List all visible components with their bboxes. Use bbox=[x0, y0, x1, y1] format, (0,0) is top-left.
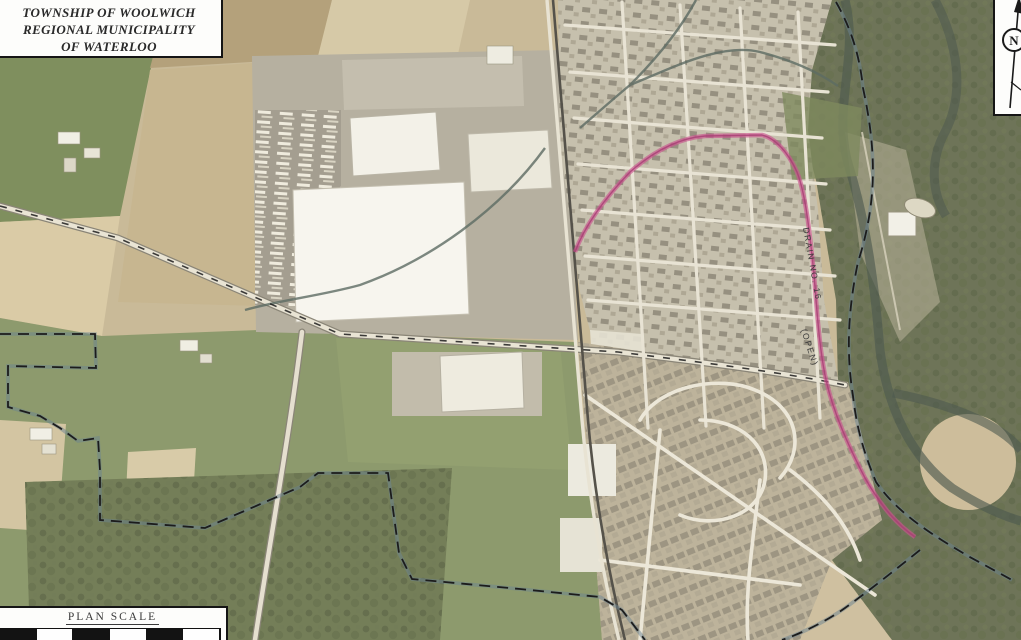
north-arrow-box: N bbox=[993, 0, 1021, 116]
plan-scale-title: PLAN SCALE bbox=[0, 611, 226, 623]
title-block: TOWNSHIP OF WOOLWICH REGIONAL MUNICIPALI… bbox=[0, 0, 223, 58]
map-artwork: DRAIN NO. 16 (OPEN) bbox=[0, 0, 1021, 640]
title-line-3: OF WATERLOO bbox=[0, 39, 221, 56]
scale-bar bbox=[0, 628, 221, 640]
north-label: N bbox=[1009, 33, 1019, 48]
plan-scale-box: PLAN SCALE bbox=[0, 606, 228, 640]
title-line-2: REGIONAL MUNICIPALITY bbox=[0, 22, 221, 39]
title-line-1: TOWNSHIP OF WOOLWICH bbox=[0, 5, 221, 22]
north-arrow-icon: N bbox=[995, 0, 1021, 114]
aerial-plan-map: DRAIN NO. 16 (OPEN) TOWNSHIP OF WOOLWICH… bbox=[0, 0, 1021, 640]
